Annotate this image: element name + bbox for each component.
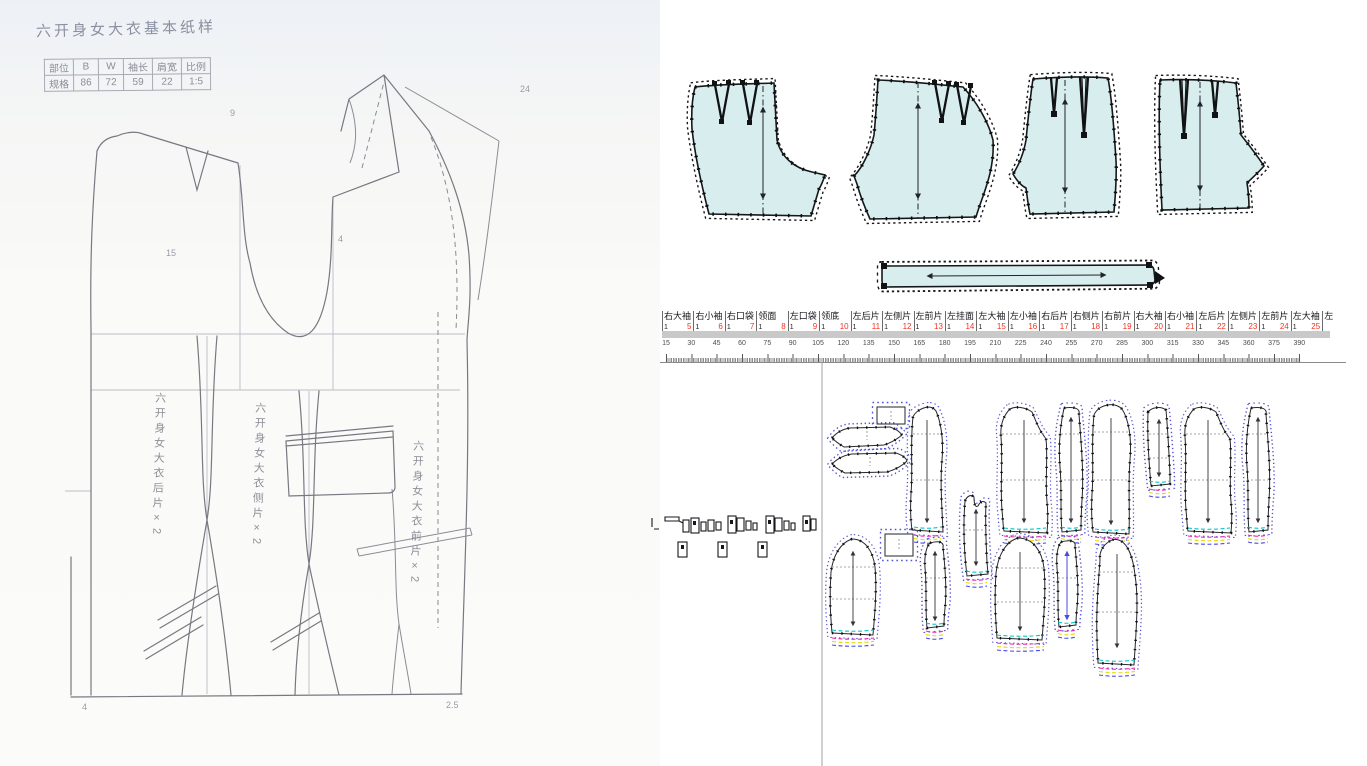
spec-header-cell: 肩宽: [152, 58, 181, 74]
piece-tab-name: 左大袖: [1292, 311, 1322, 321]
piece-tab[interactable]: 右大袖15: [662, 311, 693, 331]
work-piece-pocket-rect[interactable]: [881, 530, 918, 561]
work-piece-small-side[interactable]: [920, 537, 950, 639]
pencil-draft-drawing: [0, 0, 660, 766]
piece-tab-name: 右侧片: [1072, 311, 1102, 321]
front-edge: [429, 131, 470, 694]
piece-number: 22: [1217, 323, 1226, 331]
cad-piece-waistband[interactable]: [878, 261, 1166, 292]
ruler-number: 45: [713, 340, 721, 347]
back-neck-shoulder: [97, 132, 238, 163]
ruler-major-ticks: [666, 354, 1300, 362]
grading-size-line: [997, 650, 1044, 651]
piece-number: 10: [840, 323, 849, 331]
piece-tab-name: 左侧片: [883, 311, 913, 321]
spec-value-cell: 86: [74, 75, 99, 91]
piece-tab[interactable]: 左前片124: [1259, 311, 1290, 331]
piece-number: 18: [1091, 323, 1100, 331]
ruler-number: 390: [1293, 340, 1305, 347]
ruler-number: 345: [1217, 340, 1229, 347]
piece-tab[interactable]: 左大袖125: [1291, 311, 1322, 331]
armhole-curve: [238, 163, 333, 337]
piece-tab[interactable]: 右口袋17: [725, 311, 756, 331]
grading-size-line: [1099, 675, 1135, 676]
piece-number: 12: [903, 323, 912, 331]
piece-tab[interactable]: 右小袖121: [1165, 311, 1196, 331]
work-piece-facing[interactable]: [1143, 403, 1174, 497]
piece-tab-name: 左后片: [852, 311, 882, 321]
horizontal-ruler: 1530456075901051201351501651801952102252…: [660, 338, 1346, 363]
thumbnail-pieces-cluster[interactable]: [652, 516, 816, 557]
piece-tab-name: 右大袖: [663, 311, 693, 321]
work-piece-front-panel[interactable]: [996, 403, 1052, 544]
piece-tab-name: 右后片: [1040, 311, 1070, 321]
piece-count: 1: [821, 324, 825, 331]
ruler-number: 255: [1065, 340, 1077, 347]
ruler-number: 375: [1268, 340, 1280, 347]
cad-piece-shorts-back-right[interactable]: [850, 76, 998, 224]
spec-table: 部位BW袖长肩宽比例规格867259221:5: [44, 57, 211, 92]
front-shoulder: [333, 172, 399, 197]
tab-bar-gray-band: [662, 331, 1330, 338]
piece-tab[interactable]: 左侧片123: [1228, 311, 1259, 331]
grading-size-line: [1188, 543, 1230, 544]
piece-tab-name: 左口袋: [789, 311, 819, 321]
piece-tab-name: 左侧片: [1229, 311, 1259, 321]
colored-pattern-pieces-canvas: [660, 40, 1367, 305]
piece-count: 1: [790, 324, 794, 331]
piece-number: 24: [1280, 323, 1289, 331]
cad-piece-shorts-front-left[interactable]: [1009, 72, 1121, 218]
piece-tab[interactable]: 领面18: [756, 311, 787, 331]
ruler-number: 240: [1040, 340, 1052, 347]
grading-size-line: [966, 579, 987, 580]
ruler-number: 315: [1167, 340, 1179, 347]
piece-count: 1: [758, 324, 762, 331]
piece-tab-name: 领面: [757, 311, 787, 321]
grading-work-area: [640, 362, 1367, 766]
figure-number: 24: [520, 84, 530, 94]
piece-count: 1: [1104, 324, 1108, 331]
grading-size-line: [966, 586, 987, 587]
sleeve-dashed-curve: [431, 137, 457, 330]
grading-size-line: [997, 647, 1044, 648]
piece-count: 1: [1136, 324, 1140, 331]
piece-count: 1: [916, 324, 920, 331]
piece-number: 23: [1248, 323, 1257, 331]
ruler-number: 195: [964, 340, 976, 347]
ruler-number: 210: [989, 340, 1001, 347]
piece-tab-name: 右小袖: [1166, 311, 1196, 321]
piece-number: 6: [718, 323, 722, 331]
work-piece-tall-panel[interactable]: [1092, 535, 1141, 676]
piece-number: 17: [1060, 323, 1069, 331]
grading-size-line: [1004, 536, 1046, 537]
piece-count: 1: [947, 324, 951, 331]
composite-screenshot: 六开身女大衣基本纸样 部位BW袖长肩宽比例规格867259221:5: [0, 0, 1367, 766]
piece-number: 14: [965, 323, 974, 331]
piece-tab[interactable]: 领底110: [819, 311, 850, 331]
ruler-number: 15: [662, 340, 670, 347]
piece-tab[interactable]: 右小袖16: [693, 311, 724, 331]
ruler-number: 180: [939, 340, 951, 347]
piece-number: 20: [1154, 323, 1163, 331]
piece-tab-name: 左挂面: [946, 311, 976, 321]
piece-tab-name: 左后片: [1197, 311, 1227, 321]
grading-size-line: [1248, 535, 1268, 536]
piece-tab-name: 左大袖: [977, 311, 1007, 321]
piece-number: 11: [872, 323, 880, 331]
piece-count: 1: [1073, 324, 1077, 331]
spec-value-cell: 22: [152, 74, 181, 90]
piece-tab-name: 右小袖: [694, 311, 724, 321]
grading-size-line: [1248, 542, 1268, 543]
grading-size-line: [1058, 634, 1076, 635]
grading-size-line: [1149, 496, 1170, 497]
piece-tab[interactable]: 左口袋19: [788, 311, 819, 331]
work-piece-front-panel-2[interactable]: [1180, 403, 1236, 544]
ruler-number: 90: [789, 340, 797, 347]
spec-value-cell: 规格: [45, 75, 74, 91]
piece-tab[interactable]: 左小袖116: [1008, 311, 1039, 331]
figure-number: 4: [82, 702, 87, 712]
grading-size-line: [997, 643, 1044, 644]
grading-size-line: [1188, 536, 1230, 537]
grading-size-line: [926, 638, 944, 639]
grading-size-line: [1099, 672, 1135, 673]
piece-tab[interactable]: 右后片117: [1039, 311, 1070, 331]
spec-value-cell: 1:5: [181, 74, 210, 90]
ruler-number: 270: [1091, 340, 1103, 347]
figure-number: 15: [166, 248, 176, 258]
ruler-number: 285: [1116, 340, 1128, 347]
piece-count: 1: [1198, 324, 1202, 331]
piece-tab[interactable]: 左后片122: [1196, 311, 1227, 331]
grading-size-line: [832, 645, 874, 646]
spec-value-cell: 59: [124, 74, 153, 90]
work-piece-small-side-2[interactable]: [1052, 536, 1082, 638]
piece-count: 1: [695, 324, 699, 331]
piece-tab[interactable]: 右前片119: [1102, 311, 1133, 331]
ruler-number: 120: [837, 340, 849, 347]
ruler-number: 135: [863, 340, 875, 347]
roll-line: [362, 78, 385, 168]
piece-tab-name: 左前片: [915, 311, 945, 321]
back-panel-outline: [91, 151, 97, 695]
work-piece-small-rect[interactable]: [873, 403, 910, 429]
figure-number: 2.5: [446, 700, 459, 710]
cad-piece-shorts-front-right[interactable]: [1155, 75, 1269, 214]
spec-header-cell: B: [73, 59, 98, 75]
piece-number: 15: [997, 323, 1006, 331]
grading-size-line: [1149, 493, 1170, 494]
piece-number: 19: [1123, 323, 1132, 331]
ruler-number: 60: [738, 340, 746, 347]
piece-tab-name: 右前片: [1103, 311, 1133, 321]
figure-number: 9: [230, 108, 235, 118]
piece-number: 5: [687, 323, 691, 331]
work-piece-sleeve-big[interactable]: [826, 535, 881, 647]
work-piece-back-panel[interactable]: [906, 403, 947, 544]
work-piece-underarm[interactable]: [959, 491, 992, 587]
ruler-number: 75: [763, 340, 771, 347]
piece-tab[interactable]: 左大袖115: [976, 311, 1007, 331]
piece-count: 1: [1293, 324, 1297, 331]
piece-count: 1: [1230, 324, 1234, 331]
piece-tab-name: 右大袖: [1135, 311, 1165, 321]
work-piece-side-panel-2[interactable]: [1242, 403, 1274, 543]
piece-number: 8: [781, 323, 785, 331]
sleeve-draft-lines: [349, 87, 499, 300]
grading-size-line: [1188, 540, 1230, 541]
grading-size-line: [1061, 535, 1081, 536]
piece-number: 21: [1186, 323, 1195, 331]
ruler-number: 225: [1015, 340, 1027, 347]
ruler-number: 300: [1141, 340, 1153, 347]
spec-header-cell: W: [98, 59, 123, 75]
piece-count: 1: [1041, 324, 1045, 331]
spec-value-cell: 72: [99, 75, 124, 91]
grading-size-line: [1248, 539, 1268, 540]
piece-count: 1: [1167, 324, 1171, 331]
piece-count: 1: [978, 324, 982, 331]
piece-number: 9: [813, 323, 817, 331]
piece-count: 1: [664, 324, 668, 331]
piece-tab[interactable]: 左: [1322, 311, 1353, 331]
work-piece-side-panel[interactable]: [1055, 403, 1087, 543]
grading-size-line: [966, 583, 987, 584]
piece-count: 1: [1261, 324, 1265, 331]
work-piece-collar-bottom[interactable]: [828, 449, 912, 478]
piece-tab-name: 左前片: [1260, 311, 1290, 321]
piece-tab[interactable]: 左后片111: [851, 311, 882, 331]
work-piece-sleeve-big-2[interactable]: [991, 534, 1050, 652]
grading-size-line: [832, 642, 874, 643]
spec-header-cell: 部位: [44, 59, 73, 75]
ruler-number: 105: [812, 340, 824, 347]
ruler-number: 165: [913, 340, 925, 347]
piece-number: 25: [1311, 323, 1320, 331]
ruler-number: 150: [888, 340, 900, 347]
piece-tab[interactable]: 左挂面114: [945, 311, 976, 331]
grading-size-line: [926, 635, 944, 636]
piece-tab-name: 右口袋: [726, 311, 756, 321]
piece-tab-name: 左: [1323, 311, 1353, 321]
piece-number: 16: [1028, 323, 1037, 331]
piece-count: 1: [1010, 324, 1014, 331]
work-piece-back-panel-2[interactable]: [1087, 400, 1135, 545]
piece-tab-bar: 右大袖15右小袖16右口袋17领面18左口袋19领底110左后片111左侧片11…: [662, 311, 1367, 331]
spec-header-cell: 比例: [181, 58, 210, 74]
piece-tab[interactable]: 左侧片112: [882, 311, 913, 331]
hand-drafted-pattern-scan: 六开身女大衣基本纸样 部位BW袖长肩宽比例规格867259221:5: [0, 0, 660, 766]
work-piece-collar-top[interactable]: [828, 423, 907, 452]
piece-tab[interactable]: 右大袖120: [1134, 311, 1165, 331]
spec-header-cell: 袖长: [123, 58, 152, 74]
ruler-number: 330: [1192, 340, 1204, 347]
grading-size-line: [1058, 637, 1076, 638]
piece-count: 1: [853, 324, 857, 331]
cad-piece-shorts-back-left[interactable]: [687, 79, 829, 221]
piece-tab-name: 左小袖: [1009, 311, 1039, 321]
piece-number: 13: [934, 323, 943, 331]
piece-number: 7: [750, 323, 754, 331]
lapel-lines: [341, 75, 429, 172]
ruler-number: 30: [687, 340, 695, 347]
piece-count: 1: [884, 324, 888, 331]
piece-tab[interactable]: 左前片113: [914, 311, 945, 331]
ruler-number: 360: [1243, 340, 1255, 347]
figure-number: 4: [338, 234, 343, 244]
piece-tab[interactable]: 右侧片118: [1071, 311, 1102, 331]
hem-slash-marks: [144, 586, 321, 659]
piece-count: 1: [727, 324, 731, 331]
piece-tab-name: 领底: [820, 311, 850, 321]
